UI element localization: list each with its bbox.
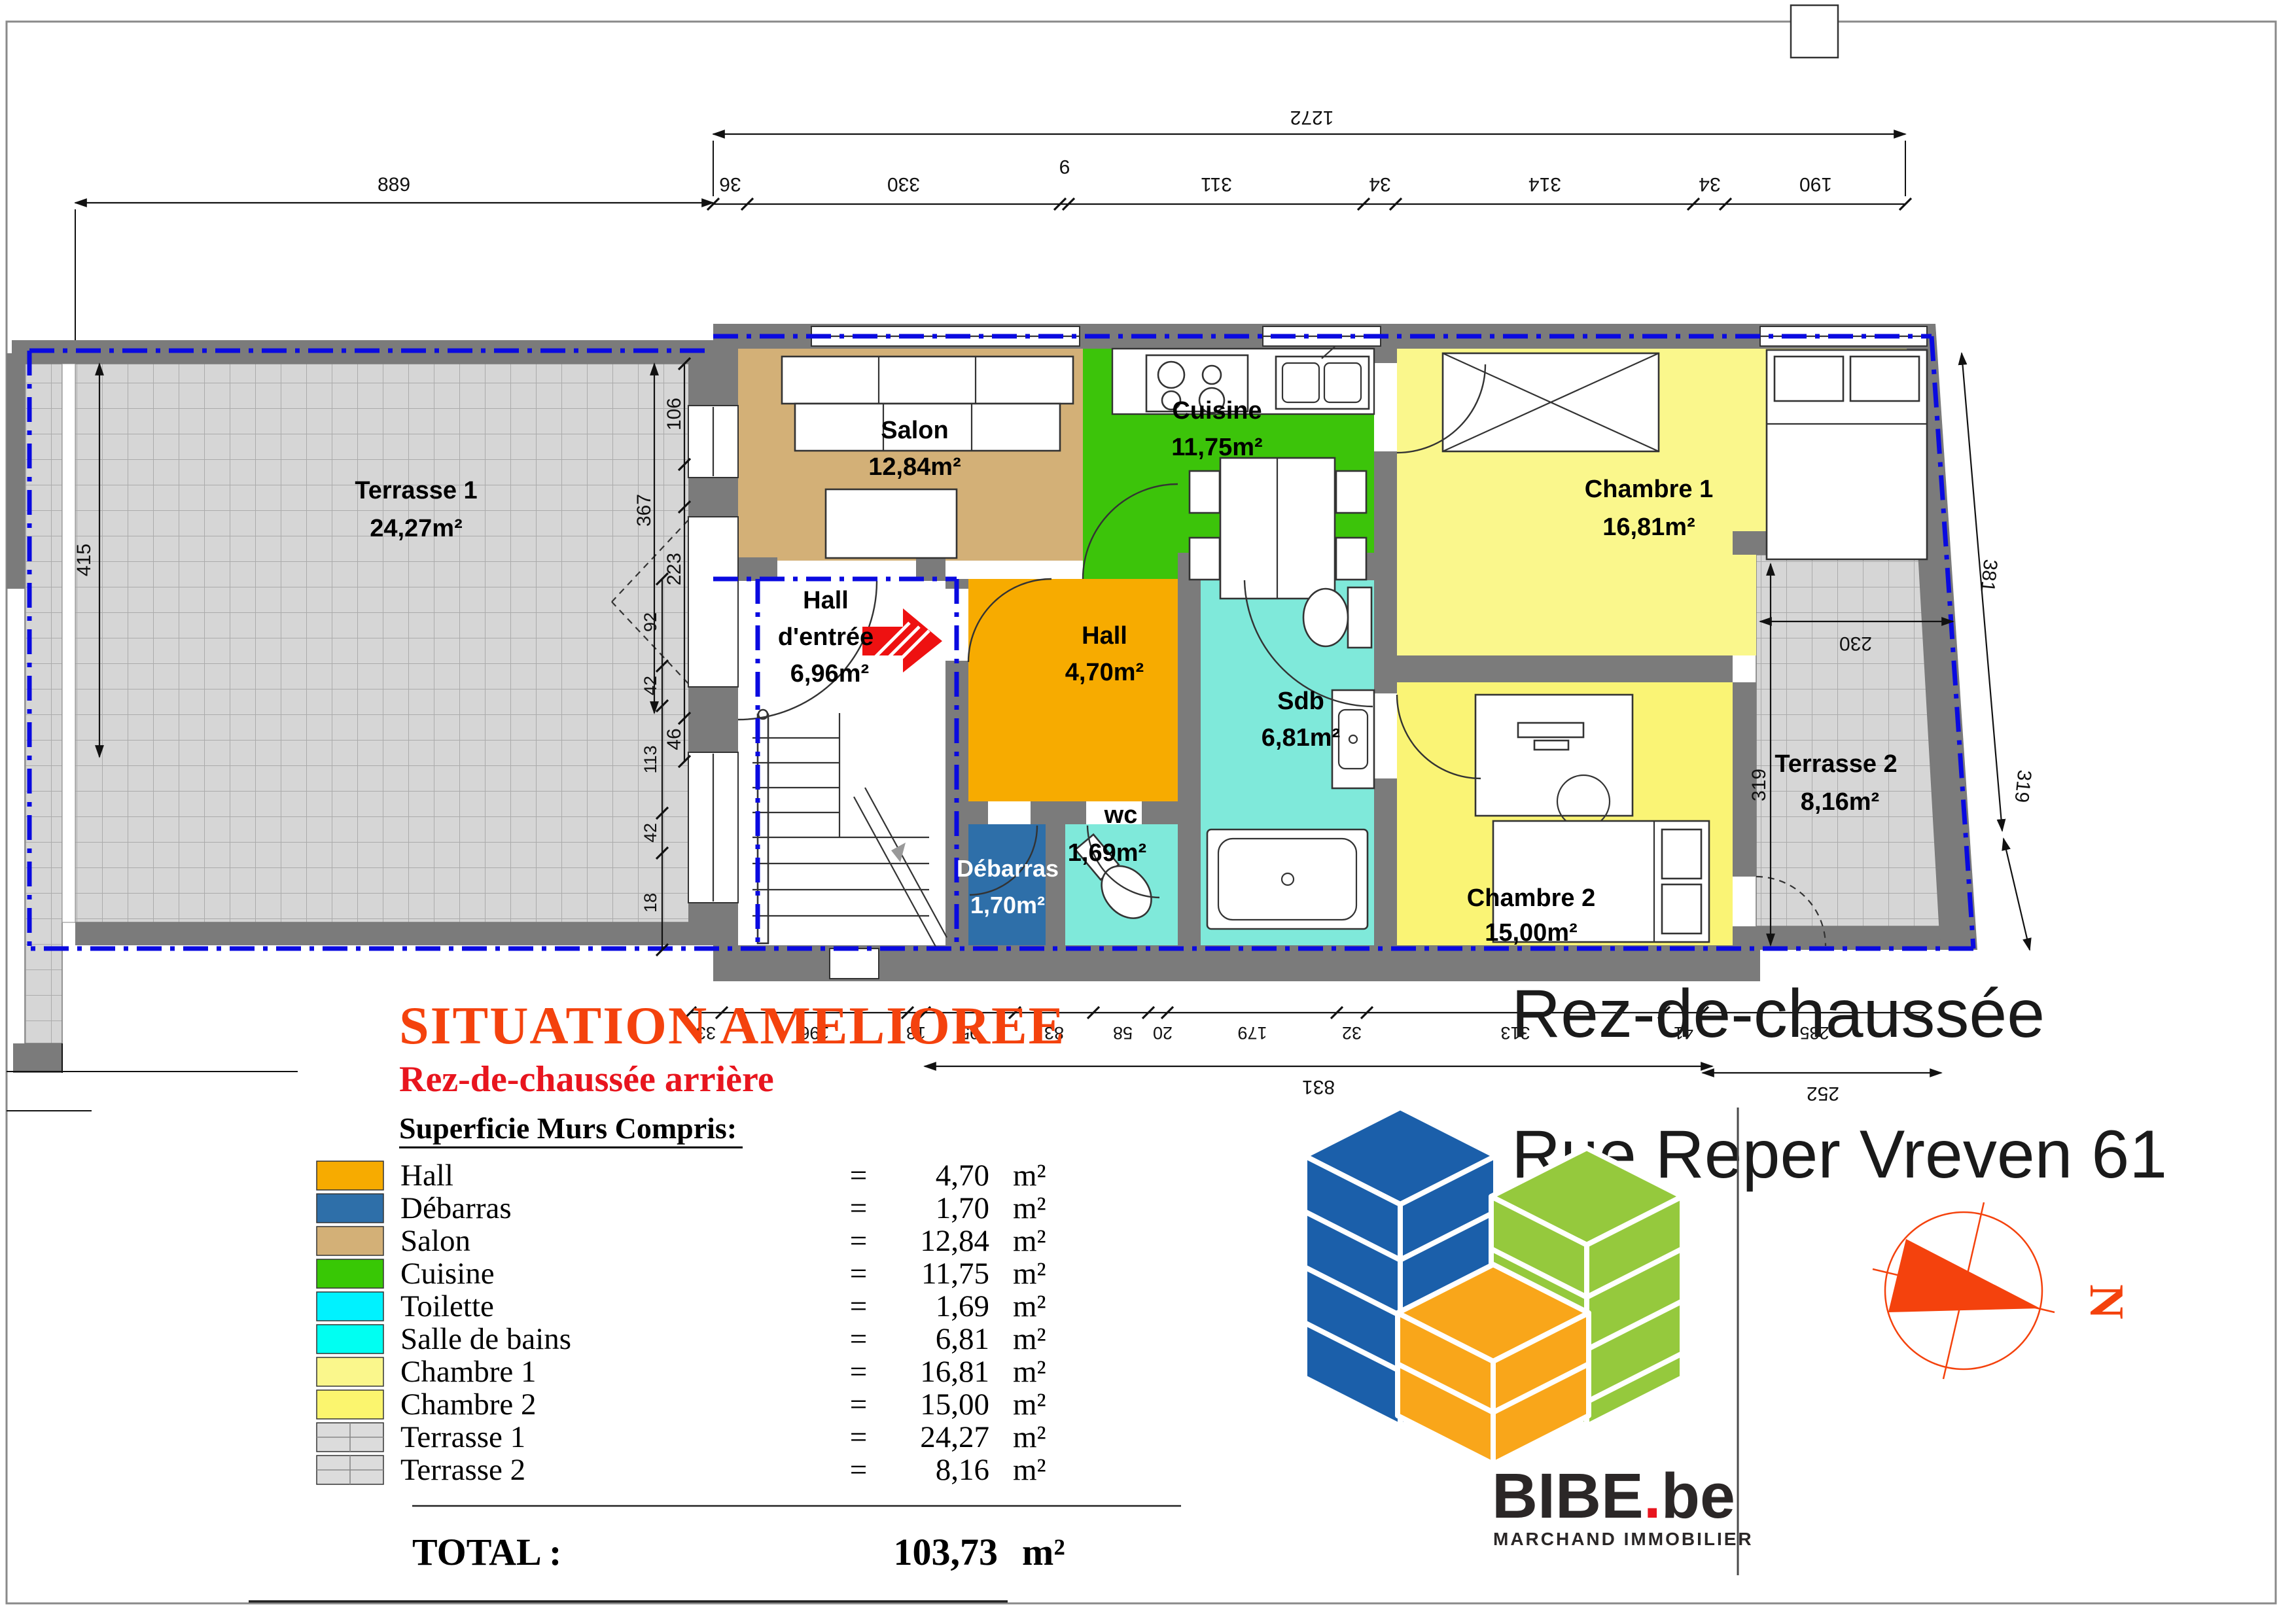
- swatch-chambre2: [317, 1390, 383, 1419]
- dim: 311: [1201, 173, 1232, 195]
- swatch-debarras: [317, 1194, 383, 1223]
- dim: 58: [1113, 1023, 1133, 1043]
- sink: [1276, 357, 1369, 409]
- legend-label: Salle de bains: [400, 1322, 571, 1356]
- legend-unit: m²: [1013, 1453, 1046, 1487]
- dim: 230: [1839, 633, 1872, 654]
- legend-row: Chambre 1 = 16,81 m²: [317, 1355, 1046, 1389]
- label-cuisine: Cuisine: [1172, 397, 1262, 425]
- north-label: N: [2079, 1284, 2133, 1319]
- area-debarras: 1,70m²: [970, 892, 1045, 918]
- legend-value: 24,27: [920, 1420, 989, 1454]
- equals: =: [850, 1453, 868, 1487]
- dim: 831: [1302, 1076, 1335, 1098]
- legend-unit: m²: [1013, 1289, 1046, 1323]
- legend-subtitle: Rez-de-chaussée arrière: [399, 1059, 774, 1100]
- dim: 36: [719, 173, 741, 195]
- total-unit: m²: [1022, 1531, 1065, 1573]
- equals: =: [850, 1322, 868, 1356]
- entry-arrow: [862, 608, 942, 672]
- north-tab: [1791, 5, 1838, 58]
- label-salon: Salon: [881, 417, 948, 444]
- wall: [1374, 451, 1397, 693]
- equals: =: [850, 1257, 868, 1291]
- legend-value: 15,00: [920, 1387, 989, 1422]
- floor-label: Rez-de-chaussée: [1511, 976, 2045, 1052]
- dim: 330: [887, 173, 920, 195]
- dim-889: 889: [378, 174, 410, 196]
- hall-floor: [968, 579, 1178, 801]
- dim: 92: [641, 612, 660, 632]
- label-hall-entree-1: Hall: [803, 587, 849, 614]
- legend-row: Salon = 12,84 m²: [317, 1224, 1046, 1258]
- dim: 32: [1342, 1023, 1362, 1043]
- legend-value: 1,69: [936, 1289, 989, 1323]
- legend-unit: m²: [1013, 1224, 1046, 1258]
- bathtub: [1207, 829, 1368, 929]
- debarras-floor: [968, 824, 1046, 945]
- equals: =: [850, 1355, 868, 1389]
- legend-title: SITUATION AMELIOREE: [399, 996, 1065, 1055]
- legend-value: 12,84: [920, 1224, 989, 1258]
- area-terrasse2: 8,16m²: [1801, 788, 1879, 816]
- wall: [1046, 824, 1065, 945]
- terrasse1-floor: [75, 364, 713, 922]
- compass: N: [1873, 1202, 2133, 1379]
- wall: [1178, 579, 1201, 945]
- dim: 223: [663, 553, 685, 585]
- dim: 381: [1976, 558, 2001, 593]
- bottom-wall-opening: [830, 949, 879, 979]
- legend-row: Salle de bains = 6,81 m²: [317, 1322, 1046, 1356]
- legend-row: Terrasse 2 = 8,16 m²: [317, 1453, 1046, 1487]
- legend-label: Débarras: [400, 1191, 512, 1225]
- wall: [75, 922, 713, 945]
- wall: [1397, 655, 1733, 682]
- equals: =: [850, 1289, 868, 1323]
- area-hall: 4,70m²: [1065, 659, 1144, 686]
- area-hall-entree: 6,96m²: [790, 660, 869, 688]
- label-terrasse1: Terrasse 1: [355, 477, 477, 504]
- total-value: 103,73: [894, 1531, 998, 1573]
- total-label: TOTAL :: [412, 1531, 561, 1573]
- dim-415: 415: [73, 544, 95, 576]
- dim: 113: [641, 745, 660, 773]
- swatch-chambre1: [317, 1357, 383, 1386]
- wall: [13, 1043, 62, 1073]
- area-sdb: 6,81m²: [1262, 724, 1340, 752]
- area-wc: 1,69m²: [1068, 839, 1146, 867]
- legend-unit: m²: [1013, 1322, 1046, 1356]
- legend-row: Hall = 4,70 m²: [317, 1159, 1046, 1193]
- dim: 18: [641, 893, 660, 913]
- legend-unit: m²: [1013, 1420, 1046, 1454]
- legend-unit: m²: [1013, 1387, 1046, 1422]
- legend-row: Toilette = 1,69 m²: [317, 1289, 1046, 1323]
- legend-row: Débarras = 1,70 m²: [317, 1191, 1046, 1225]
- dim: 252: [1807, 1083, 1839, 1104]
- legend-row: Terrasse 1 = 24,27 m²: [317, 1420, 1046, 1454]
- coffee-table: [826, 489, 957, 558]
- label-wc: wc: [1104, 801, 1138, 829]
- label-terrasse2: Terrasse 2: [1775, 750, 1897, 778]
- dim: 42: [641, 676, 660, 695]
- floor-plan-sheet: 1272 36 330 9 311 34 314 34 190 889 415 …: [0, 0, 2296, 1623]
- dim: 314: [1528, 173, 1561, 195]
- dim: 319: [2010, 769, 2035, 803]
- dim: 42: [641, 823, 660, 843]
- legend-label: Cuisine: [400, 1257, 495, 1291]
- terrasse2-floor: [1756, 555, 1939, 926]
- legend-value: 8,16: [936, 1453, 989, 1487]
- wall: [945, 801, 988, 824]
- legend-row: Chambre 2 = 15,00 m²: [317, 1387, 1046, 1422]
- french-door: [688, 517, 738, 687]
- equals: =: [850, 1224, 868, 1258]
- swatch-salon: [317, 1227, 383, 1255]
- legend-value: 6,81: [936, 1322, 989, 1356]
- legend-row: Cuisine = 11,75 m²: [317, 1257, 1046, 1291]
- wardrobe: [1443, 353, 1659, 451]
- dim: 9: [1059, 156, 1070, 177]
- label-debarras: Débarras: [957, 855, 1059, 882]
- legend-value: 4,70: [936, 1159, 989, 1193]
- page: 1272 36 330 9 311 34 314 34 190 889 415 …: [0, 0, 2296, 1623]
- swatch-salle-de-bains: [317, 1325, 383, 1353]
- label-sdb: Sdb: [1277, 688, 1324, 715]
- legend: SITUATION AMELIOREE Rez-de-chaussée arri…: [249, 996, 1181, 1601]
- dim: 367: [633, 494, 655, 527]
- legend-label: Terrasse 2: [400, 1453, 525, 1487]
- dim: 106: [663, 398, 685, 430]
- dim-top-total: 1272: [1290, 107, 1334, 128]
- legend-label: Toilette: [400, 1289, 494, 1323]
- dim: 179: [1237, 1023, 1267, 1043]
- legend-label: Salon: [400, 1224, 470, 1258]
- label-hall: Hall: [1082, 622, 1127, 650]
- legend-unit: m²: [1013, 1159, 1046, 1193]
- area-chambre2: 15,00m²: [1485, 919, 1578, 947]
- legend-label: Chambre 1: [400, 1355, 537, 1389]
- logo-wordmark: BIBE.be: [1492, 1460, 1735, 1531]
- legend-value: 1,70: [936, 1191, 989, 1225]
- wall: [1031, 801, 1086, 824]
- area-cuisine: 11,75m²: [1171, 434, 1262, 461]
- dim: 34: [1369, 173, 1390, 195]
- legend-label: Chambre 2: [400, 1387, 537, 1422]
- toilet-sdb: [1303, 587, 1371, 648]
- legend-label: Hall: [400, 1159, 453, 1193]
- equals: =: [850, 1420, 868, 1454]
- area-chambre1: 16,81m²: [1602, 514, 1695, 541]
- wall: [7, 353, 25, 589]
- label-chambre1: Chambre 1: [1585, 476, 1713, 503]
- equals: =: [850, 1387, 868, 1422]
- desk: [1475, 695, 1633, 828]
- legend-unit: m²: [1013, 1355, 1046, 1389]
- legend-unit: m²: [1013, 1191, 1046, 1225]
- dim: 319: [1748, 769, 1770, 801]
- legend-value: 11,75: [921, 1257, 989, 1291]
- legend-heading: Superficie Murs Compris:: [399, 1111, 737, 1145]
- swatch-toilette: [317, 1292, 383, 1321]
- dim: 20: [1153, 1023, 1173, 1043]
- logo-tagline: MARCHAND IMMOBILIER: [1493, 1529, 1754, 1549]
- swatch-hall: [317, 1161, 383, 1190]
- dim: 190: [1799, 173, 1832, 195]
- label-chambre2: Chambre 2: [1467, 884, 1595, 912]
- compass-needle: [1888, 1239, 2040, 1312]
- legend-value: 16,81: [920, 1355, 989, 1389]
- terrace-gap: [62, 364, 75, 922]
- bed-chambre1: [1767, 350, 1927, 559]
- legend-label: Terrasse 1: [400, 1420, 525, 1454]
- stairs: [752, 710, 947, 947]
- area-salon: 12,84m²: [868, 453, 961, 481]
- dim: 46: [663, 728, 685, 750]
- wall: [1142, 801, 1178, 824]
- equals: =: [850, 1159, 868, 1193]
- dim: 34: [1699, 173, 1720, 195]
- swatch-cuisine: [317, 1259, 383, 1288]
- equals: =: [850, 1191, 868, 1225]
- legend-unit: m²: [1013, 1257, 1046, 1291]
- label-hall-entree-2: d'entrée: [778, 623, 874, 651]
- area-terrasse1: 24,27m²: [370, 515, 463, 542]
